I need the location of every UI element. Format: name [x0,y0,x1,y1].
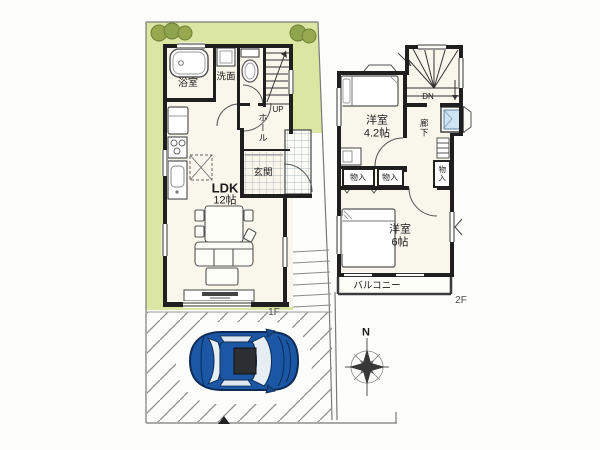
desk-icon [340,148,361,165]
floor1-label: 1F [268,308,280,318]
closet-a-label: 物入 [350,174,366,182]
closet-c-label: 物入 [438,166,446,183]
room-4-2-name-label: 洋室 [366,116,388,127]
approach-steps [293,250,331,307]
north-label: N [362,328,370,339]
stove-icon [168,137,187,158]
floor-plan-canvas: 浴室 洗面 UP ホール 玄関 LDK 12帖 1F 洋室 4.2帖 DN 廊下… [0,0,600,450]
washbasin-icon [217,48,235,66]
toilet-icon [241,49,259,82]
compass-rose [345,338,389,396]
room-6-size-label: 6帖 [391,238,408,249]
tv-board-icon [184,290,254,301]
bed-icon [342,209,395,267]
bath-label: 浴室 [178,79,198,89]
low-table-icon [206,268,238,285]
bed-icon [341,76,398,106]
car-icon [190,329,298,393]
washroom-label: 洗面 [216,72,235,82]
room-6-name-label: 洋室 [389,225,411,236]
room-4-2-size-label: 4.2帖 [364,129,390,140]
balcony-label: バルコニー [353,281,400,291]
floor2-plan [336,44,471,295]
shelf-icon [437,138,449,158]
floor2-label: 2F [455,296,467,306]
bathtub-icon [170,49,208,77]
stairs-down-label: DN [422,93,434,101]
hall-label: ホール [258,113,267,143]
porch-tiles [285,130,311,194]
sofa-icon [195,242,253,266]
corridor-label: 廊下 [420,119,429,138]
bay-window-icon [364,65,396,71]
stairs-up-label: UP [272,106,283,114]
ldk-label: LDK [212,182,239,195]
entrance-label: 玄関 [253,168,272,178]
washbasin-2f-icon [441,107,471,132]
closet-b-label: 物入 [382,174,398,182]
tree-icon [151,23,192,41]
floor-plan-drawing [0,0,600,450]
ldk-size-label: 12帖 [213,196,236,207]
